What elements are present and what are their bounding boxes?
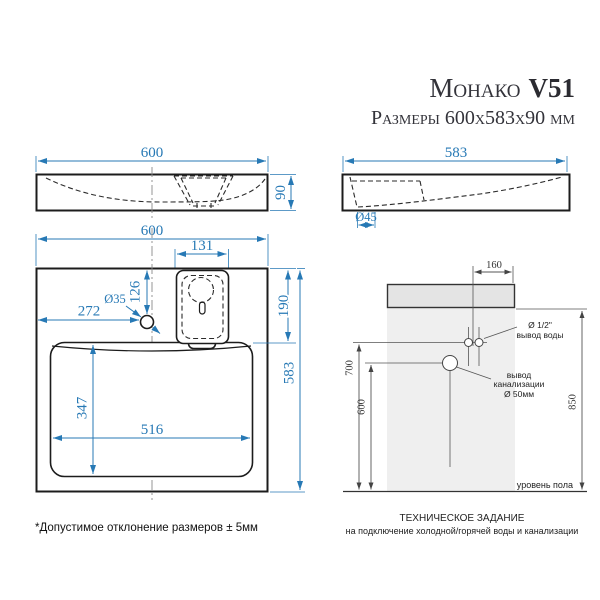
side-outline bbox=[343, 175, 570, 211]
installation-diagram: 160 Ø 1/2" вывод воды вывод канализации … bbox=[343, 260, 587, 536]
water-outlet-circle bbox=[475, 339, 483, 347]
dim-faucet-hole: Ø45 bbox=[355, 210, 377, 224]
dim-water-height: 700 bbox=[345, 360, 356, 376]
wall-band bbox=[387, 308, 515, 492]
front-view: 600 90 bbox=[36, 145, 296, 220]
product-title: МонакоV51 bbox=[429, 73, 575, 103]
water-outlet-circle bbox=[465, 339, 473, 347]
tolerance-footnote: *Допустимое отклонение размеров ± 5мм bbox=[35, 522, 258, 534]
dim-drain-height: 600 bbox=[357, 399, 368, 415]
dim-front-height: 90 bbox=[273, 185, 289, 200]
plan-dispenser bbox=[177, 271, 229, 349]
dim-total-height: 850 bbox=[568, 394, 579, 410]
faucet-hole bbox=[141, 316, 154, 329]
sink-profile bbox=[388, 285, 515, 308]
dim-water-offset: 160 bbox=[486, 260, 502, 271]
water-label-text: вывод воды bbox=[517, 330, 564, 340]
dim-hole-dia: Ø35 bbox=[104, 292, 126, 306]
dim-front-width: 600 bbox=[141, 145, 164, 161]
side-view: 583 Ø45 bbox=[343, 145, 570, 228]
floor-level-label: уровень пола bbox=[517, 480, 573, 490]
dim-side-depth: 583 bbox=[445, 145, 468, 161]
drain-outlet-circle bbox=[443, 356, 458, 371]
dim-hole-left: 272 bbox=[78, 304, 101, 320]
caption-title: ТЕХНИЧЕСКОЕ ЗАДАНИЕ bbox=[400, 513, 525, 524]
drain-label-3: Ø 50мм bbox=[504, 389, 534, 399]
dim-bowl-width: 516 bbox=[141, 422, 164, 438]
dispenser-outline bbox=[177, 271, 229, 344]
title-block: МонакоV51 Размеры 600х583х90 мм bbox=[371, 73, 576, 129]
technical-drawing-canvas: МонакоV51 Размеры 600х583х90 мм 600 90 bbox=[0, 0, 600, 600]
water-label-dia: Ø 1/2" bbox=[528, 320, 552, 330]
dim-plan-depth: 583 bbox=[282, 362, 298, 385]
product-model: V51 bbox=[529, 73, 576, 103]
product-name: Монако bbox=[429, 73, 520, 103]
drain-label-2: канализации bbox=[494, 379, 545, 389]
dim-bowl-depth: 347 bbox=[75, 396, 91, 419]
dim-dispenser-depth: 190 bbox=[276, 295, 292, 318]
dim-hole-top: 126 bbox=[128, 280, 144, 303]
caption-subtitle: на подключение холодной/горячей воды и к… bbox=[346, 526, 579, 536]
plan-view: 600 131 272 126 Ø35 bbox=[36, 223, 305, 500]
dim-dispenser-width: 131 bbox=[191, 238, 214, 254]
product-dimensions-subtitle: Размеры 600х583х90 мм bbox=[371, 107, 576, 129]
